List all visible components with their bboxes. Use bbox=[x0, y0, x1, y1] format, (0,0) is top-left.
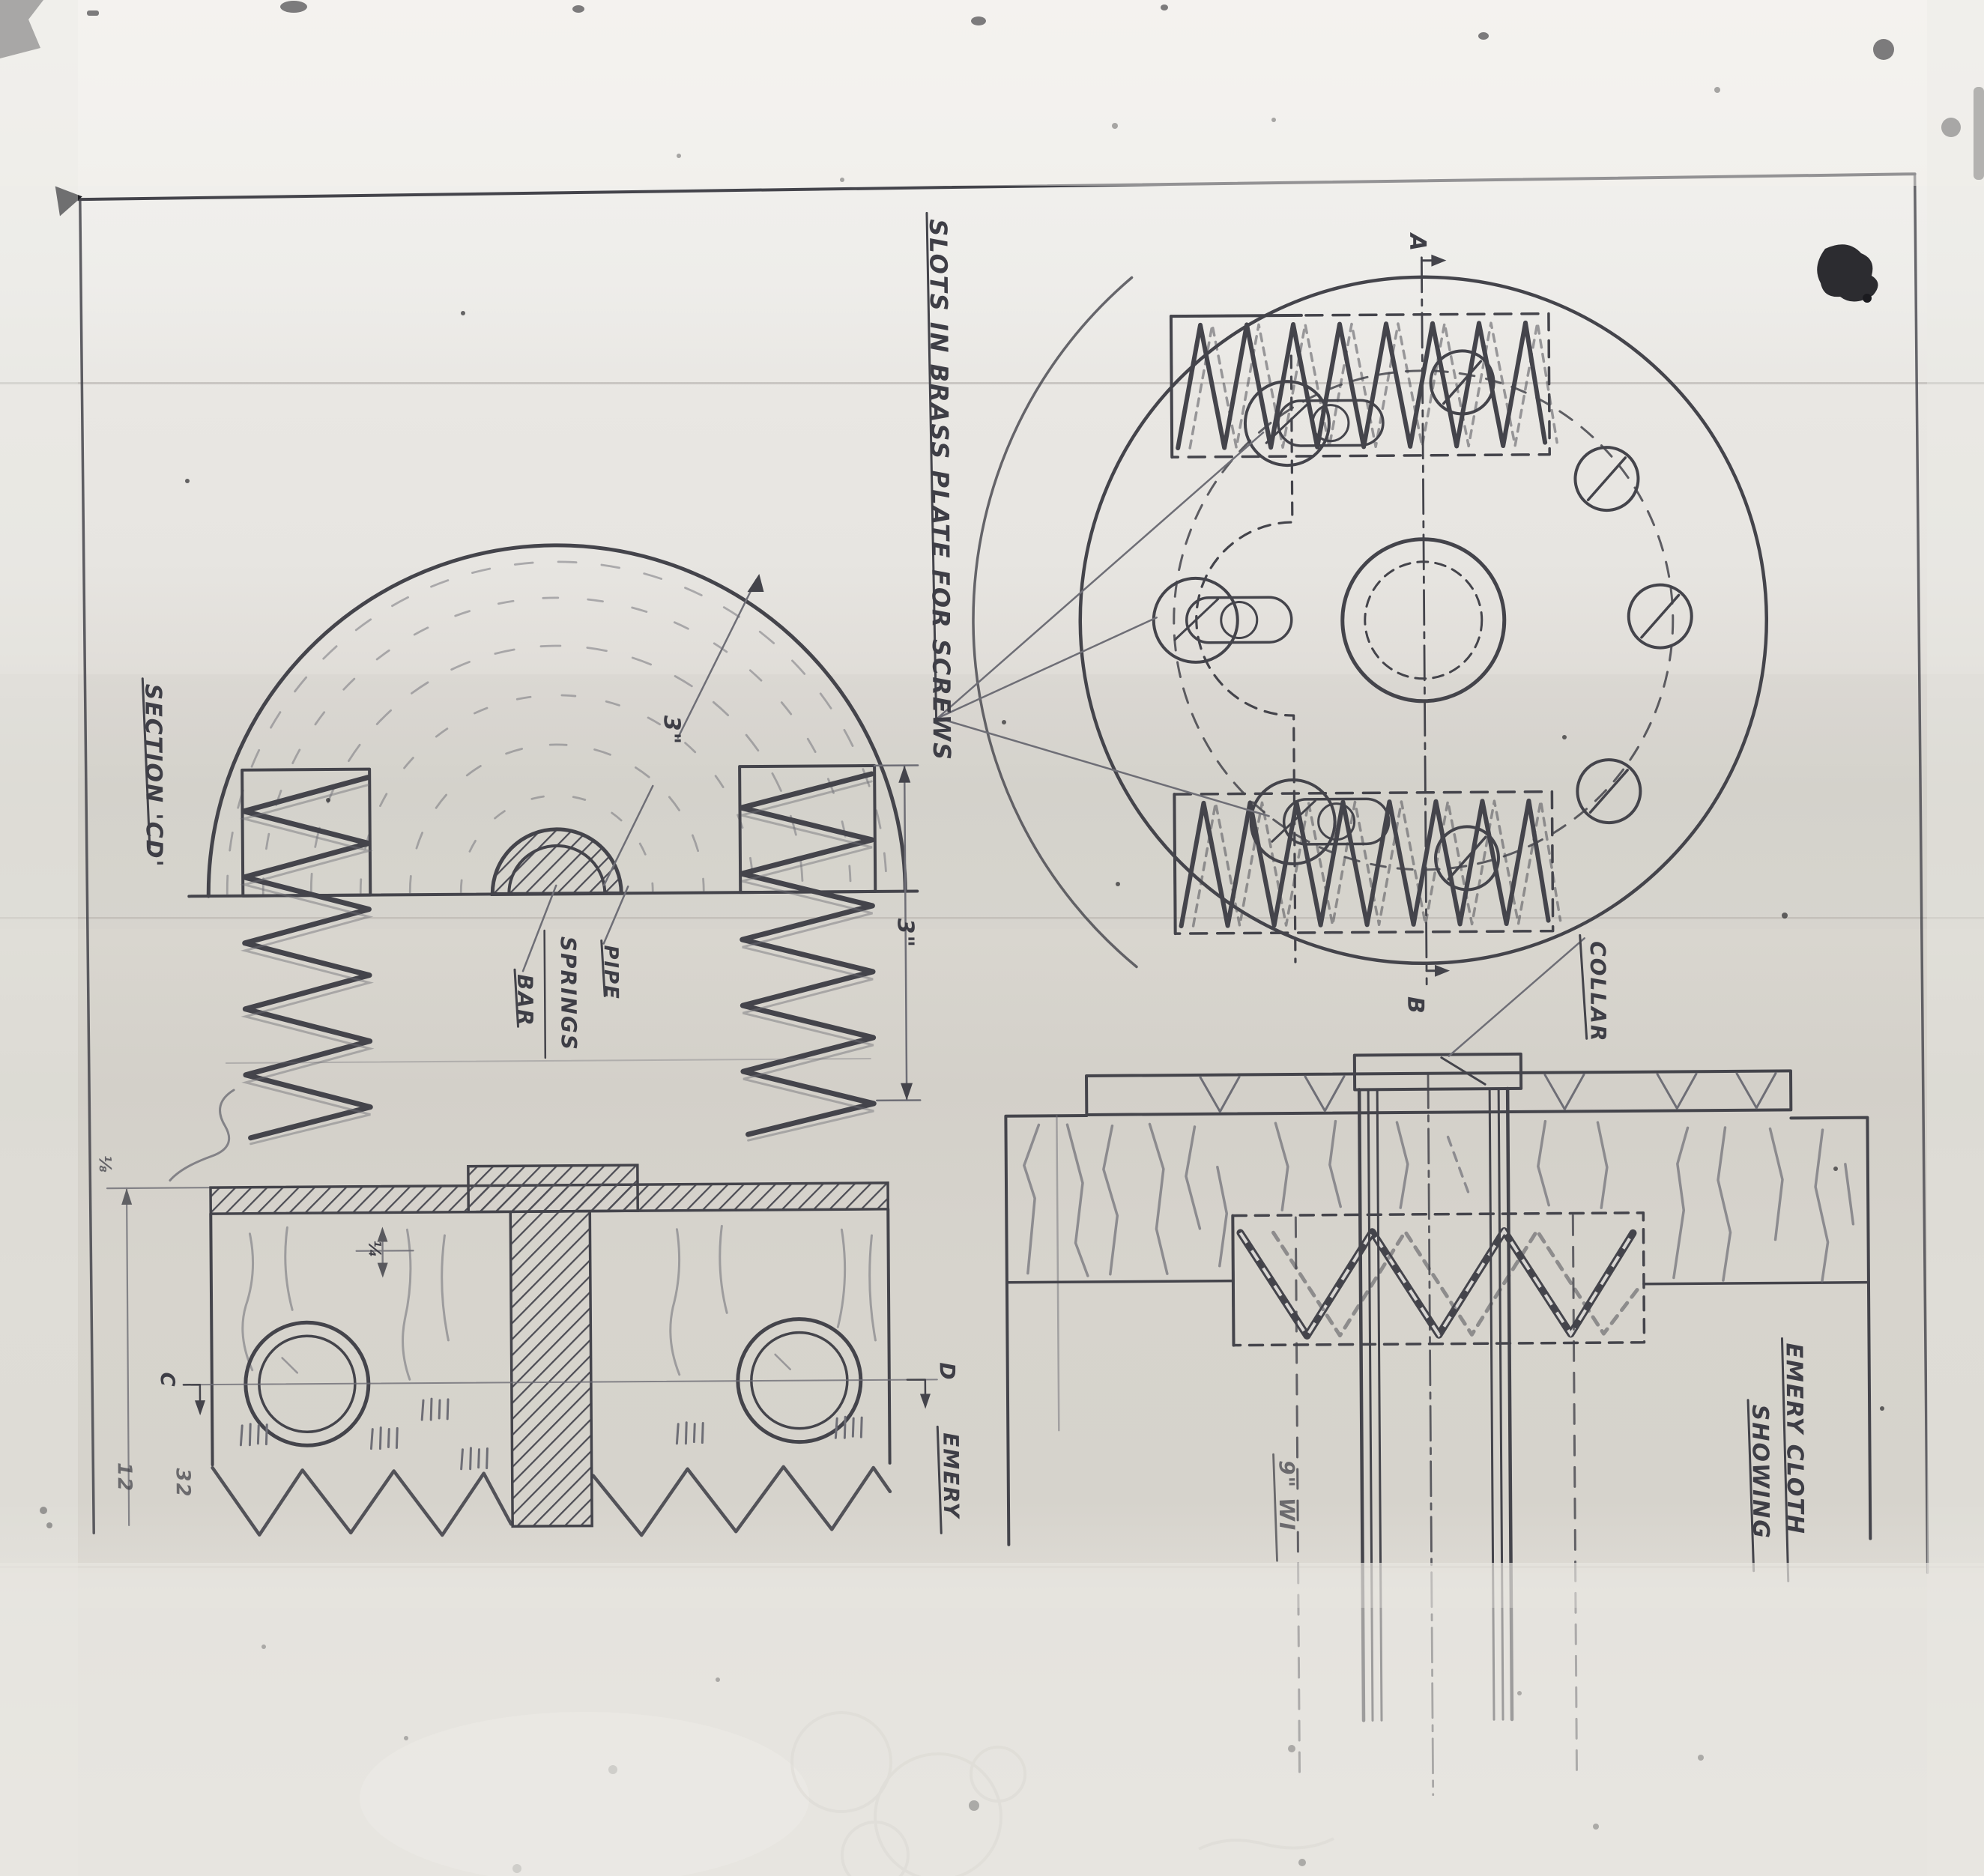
label-c: C bbox=[156, 1372, 178, 1388]
label-bar: BAR bbox=[512, 974, 537, 1027]
bar-column bbox=[510, 1211, 592, 1527]
scanned-blueprint-page: SLOTS IN BRASS PLATE FOR SCREWS SECTION … bbox=[0, 0, 1984, 1876]
label-slots-note: SLOTS IN BRASS PLATE FOR SCREWS bbox=[924, 219, 956, 761]
scan-bands bbox=[0, 382, 1984, 1573]
label-springs: SPRINGS bbox=[556, 937, 581, 1051]
scanned-drawing: SLOTS IN BRASS PLATE FOR SCREWS SECTION … bbox=[0, 0, 1984, 1876]
label-collar: COLLAR bbox=[1585, 941, 1611, 1042]
label-showing: SHOWING bbox=[1746, 1405, 1773, 1540]
label-radius-3: 3" bbox=[659, 715, 685, 746]
label-quarter: ¼ bbox=[365, 1241, 384, 1259]
ink-blob bbox=[1817, 244, 1878, 301]
label-d: D bbox=[935, 1362, 960, 1381]
screw bbox=[1628, 584, 1692, 648]
label-eighth: ⅛ bbox=[95, 1155, 114, 1174]
label-nine-wide: 9" WI bbox=[1274, 1460, 1300, 1531]
label-section-cd: SECTION 'CD' bbox=[139, 684, 167, 868]
label-emery-cloth: EMERY CLOTH bbox=[1781, 1343, 1809, 1535]
label-a: A bbox=[1404, 232, 1430, 252]
top-spring bbox=[1171, 314, 1557, 458]
label-height-3: 3" bbox=[892, 919, 919, 949]
bar-cap bbox=[468, 1165, 638, 1212]
label-margin-12: 12 bbox=[113, 1462, 136, 1492]
label-margin-32: 32 bbox=[172, 1468, 194, 1498]
label-emery: EMERY bbox=[938, 1432, 964, 1519]
label-b: B bbox=[1402, 996, 1428, 1015]
label-pipe: PIPE bbox=[599, 945, 623, 1000]
